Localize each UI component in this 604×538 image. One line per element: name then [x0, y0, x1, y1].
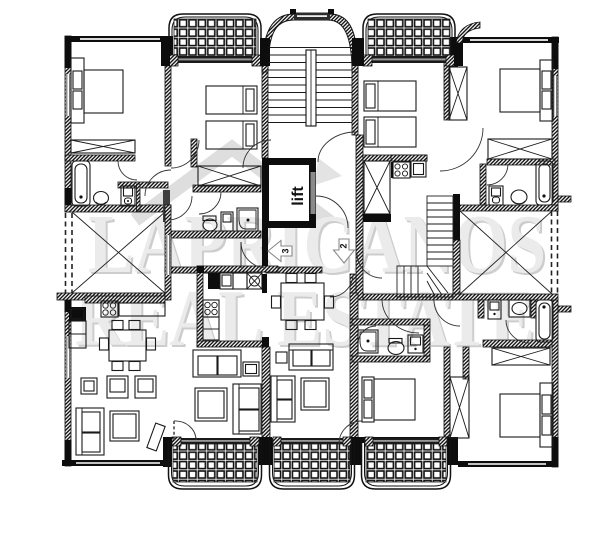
- svg-text:lift: lift: [290, 186, 307, 206]
- svg-text:3: 3: [280, 248, 290, 253]
- svg-text:2: 2: [338, 243, 348, 248]
